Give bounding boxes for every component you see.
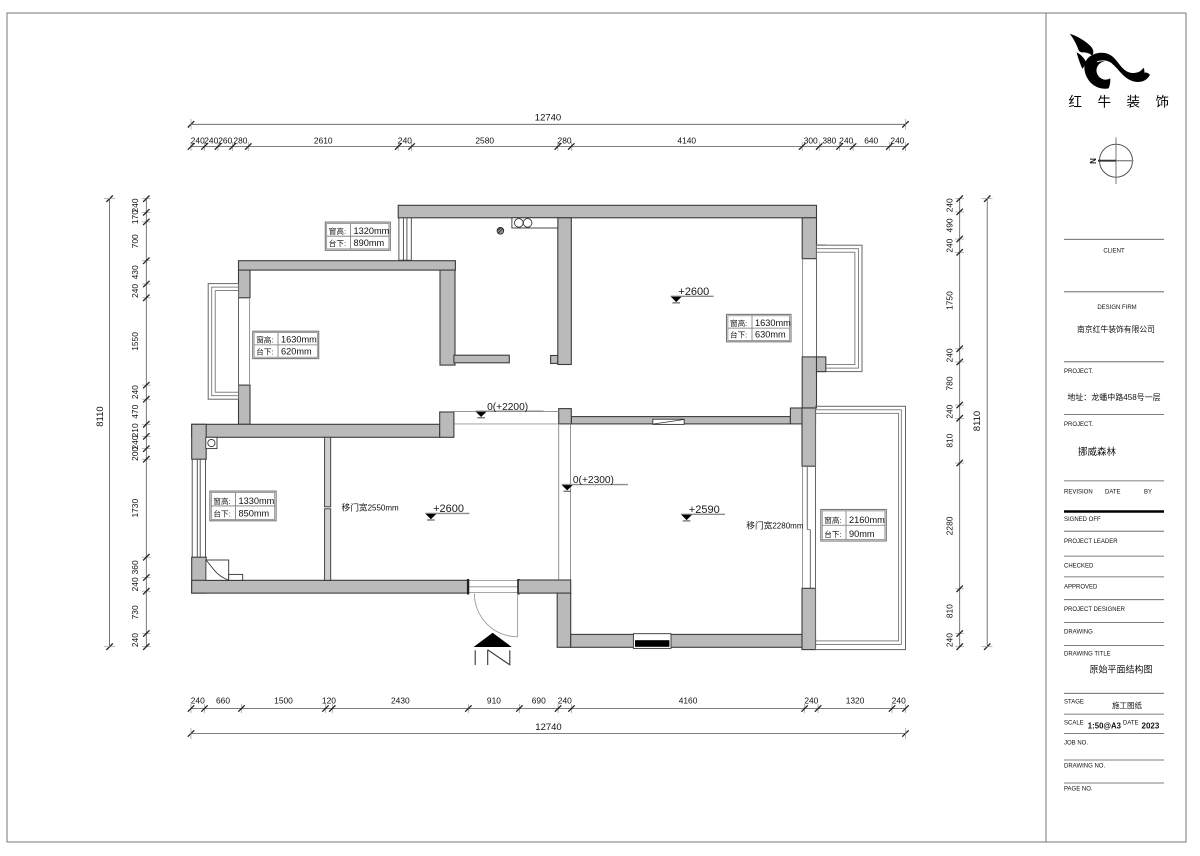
svg-text:660: 660 — [216, 696, 230, 706]
svg-text:STAGE: STAGE — [1064, 700, 1084, 706]
svg-text:280: 280 — [558, 136, 572, 146]
svg-text:360: 360 — [130, 560, 140, 574]
svg-text:窗高:: 窗高: — [213, 496, 230, 506]
svg-text:1630mm: 1630mm — [281, 335, 317, 345]
svg-text:SCALE: SCALE — [1064, 721, 1084, 727]
svg-text:2160mm: 2160mm — [849, 515, 885, 525]
svg-text:240: 240 — [558, 696, 572, 706]
svg-text:810: 810 — [945, 433, 955, 447]
svg-text:240: 240 — [945, 238, 955, 252]
svg-text:BY: BY — [1144, 490, 1152, 496]
svg-text:120: 120 — [322, 696, 336, 706]
svg-text:1320mm: 1320mm — [354, 226, 390, 236]
svg-text:DRAWING TITLE: DRAWING TITLE — [1064, 652, 1111, 658]
svg-text:1730: 1730 — [130, 499, 140, 518]
svg-text:810: 810 — [945, 604, 955, 618]
svg-text:+2600: +2600 — [433, 503, 464, 515]
svg-text:470: 470 — [130, 404, 140, 418]
svg-text:850mm: 850mm — [239, 509, 270, 519]
svg-text:原始平面结构图: 原始平面结构图 — [1089, 664, 1152, 675]
svg-text:890mm: 890mm — [354, 238, 385, 248]
svg-text:4140: 4140 — [677, 136, 696, 146]
svg-text:N: N — [1089, 158, 1098, 164]
svg-text:12740: 12740 — [535, 113, 561, 124]
svg-text:+2600: +2600 — [678, 286, 709, 298]
svg-text:PROJECT DESIGNER: PROJECT DESIGNER — [1064, 607, 1126, 613]
svg-text:APPROVED: APPROVED — [1064, 585, 1098, 591]
svg-text:300: 300 — [804, 136, 818, 146]
svg-text:窗高:: 窗高: — [329, 226, 346, 236]
svg-text:挪威森林: 挪威森林 — [1078, 446, 1117, 458]
svg-text:700: 700 — [130, 234, 140, 248]
svg-text:1550: 1550 — [130, 332, 140, 351]
svg-text:240: 240 — [130, 385, 140, 399]
svg-text:南京红牛装饰有限公司: 南京红牛装饰有限公司 — [1077, 324, 1155, 334]
svg-text:台下:: 台下: — [213, 509, 230, 519]
svg-text:240: 240 — [945, 633, 955, 647]
svg-text:台下:: 台下: — [329, 238, 346, 248]
svg-text:PROJECT.: PROJECT. — [1064, 369, 1093, 375]
svg-text:台下:: 台下: — [730, 330, 747, 340]
svg-text:240: 240 — [804, 696, 818, 706]
svg-text:640: 640 — [864, 136, 878, 146]
svg-text:1750: 1750 — [945, 291, 955, 310]
svg-text:台下:: 台下: — [824, 529, 841, 539]
svg-text:1:50@A3: 1:50@A3 — [1088, 722, 1122, 731]
svg-text:1630mm: 1630mm — [755, 318, 791, 328]
svg-text:2430: 2430 — [391, 696, 410, 706]
svg-text:240: 240 — [945, 404, 955, 418]
svg-text:380: 380 — [822, 136, 836, 146]
svg-text:2610: 2610 — [314, 136, 333, 146]
svg-text:730: 730 — [130, 605, 140, 619]
svg-text:DRAWING: DRAWING — [1064, 630, 1093, 636]
svg-text:REVISION: REVISION — [1064, 490, 1093, 496]
svg-text:DATE: DATE — [1105, 490, 1121, 496]
svg-text:CHECKED: CHECKED — [1064, 564, 1094, 570]
svg-text:240: 240 — [204, 136, 218, 146]
svg-text:窗高:: 窗高: — [730, 318, 747, 328]
svg-text:630mm: 630mm — [755, 330, 786, 340]
svg-text:窗高:: 窗高: — [256, 335, 273, 345]
svg-text:地址：龙蟠中路458号一层: 地址：龙蟠中路458号一层 — [1067, 392, 1160, 402]
svg-text:PROJECT.: PROJECT. — [1064, 422, 1093, 428]
svg-text:+2590: +2590 — [689, 504, 720, 516]
svg-text:240: 240 — [945, 198, 955, 212]
svg-text:施工图纸: 施工图纸 — [1112, 700, 1142, 710]
svg-text:DRAWING NO.: DRAWING NO. — [1064, 764, 1105, 770]
svg-text:PAGE NO.: PAGE NO. — [1064, 787, 1093, 793]
svg-text:240: 240 — [892, 696, 906, 706]
svg-text:240: 240 — [945, 348, 955, 362]
svg-text:台下:: 台下: — [256, 346, 273, 356]
svg-text:690: 690 — [532, 696, 546, 706]
svg-text:1320: 1320 — [846, 696, 865, 706]
svg-text:JOB NO.: JOB NO. — [1064, 741, 1088, 747]
svg-text:CLIENT: CLIENT — [1103, 249, 1125, 255]
svg-text:PROJECT LEADER: PROJECT LEADER — [1064, 539, 1118, 545]
svg-text:0(+2300): 0(+2300) — [573, 475, 614, 486]
svg-text:240: 240 — [398, 136, 412, 146]
svg-text:240: 240 — [839, 136, 853, 146]
svg-text:490: 490 — [945, 218, 955, 232]
svg-text:280: 280 — [233, 136, 247, 146]
svg-text:210: 210 — [130, 423, 140, 437]
svg-text:0(+2200): 0(+2200) — [487, 402, 528, 413]
svg-text:260: 260 — [218, 136, 232, 146]
svg-text:8110: 8110 — [95, 406, 106, 426]
svg-text:910: 910 — [487, 696, 501, 706]
svg-text:移门宽2550mm: 移门宽2550mm — [342, 502, 400, 513]
svg-text:240: 240 — [130, 633, 140, 647]
svg-text:4160: 4160 — [679, 696, 698, 706]
svg-text:窗高:: 窗高: — [824, 515, 841, 525]
svg-text:DESIGN FIRM: DESIGN FIRM — [1097, 305, 1136, 311]
svg-text:780: 780 — [945, 376, 955, 390]
svg-text:12740: 12740 — [535, 722, 561, 733]
svg-text:90mm: 90mm — [849, 529, 875, 539]
svg-text:移门宽2280mm: 移门宽2280mm — [746, 520, 804, 531]
svg-text:170: 170 — [130, 210, 140, 224]
svg-text:1330mm: 1330mm — [239, 496, 275, 506]
svg-text:240: 240 — [130, 577, 140, 591]
svg-text:红牛装饰: 红牛装饰 — [1069, 95, 1185, 110]
svg-text:240: 240 — [890, 136, 904, 146]
svg-text:240: 240 — [130, 284, 140, 298]
svg-text:1500: 1500 — [274, 696, 293, 706]
svg-text:620mm: 620mm — [281, 346, 312, 356]
svg-text:240: 240 — [191, 136, 205, 146]
svg-text:SIGNED OFF: SIGNED OFF — [1064, 517, 1101, 523]
svg-text:2023: 2023 — [1142, 722, 1160, 731]
svg-text:DATE: DATE — [1123, 721, 1139, 727]
svg-text:8110: 8110 — [972, 411, 983, 431]
svg-text:2280: 2280 — [945, 516, 955, 535]
svg-text:430: 430 — [130, 265, 140, 279]
svg-text:200: 200 — [130, 447, 140, 461]
svg-text:240: 240 — [191, 696, 205, 706]
svg-text:2580: 2580 — [475, 136, 494, 146]
